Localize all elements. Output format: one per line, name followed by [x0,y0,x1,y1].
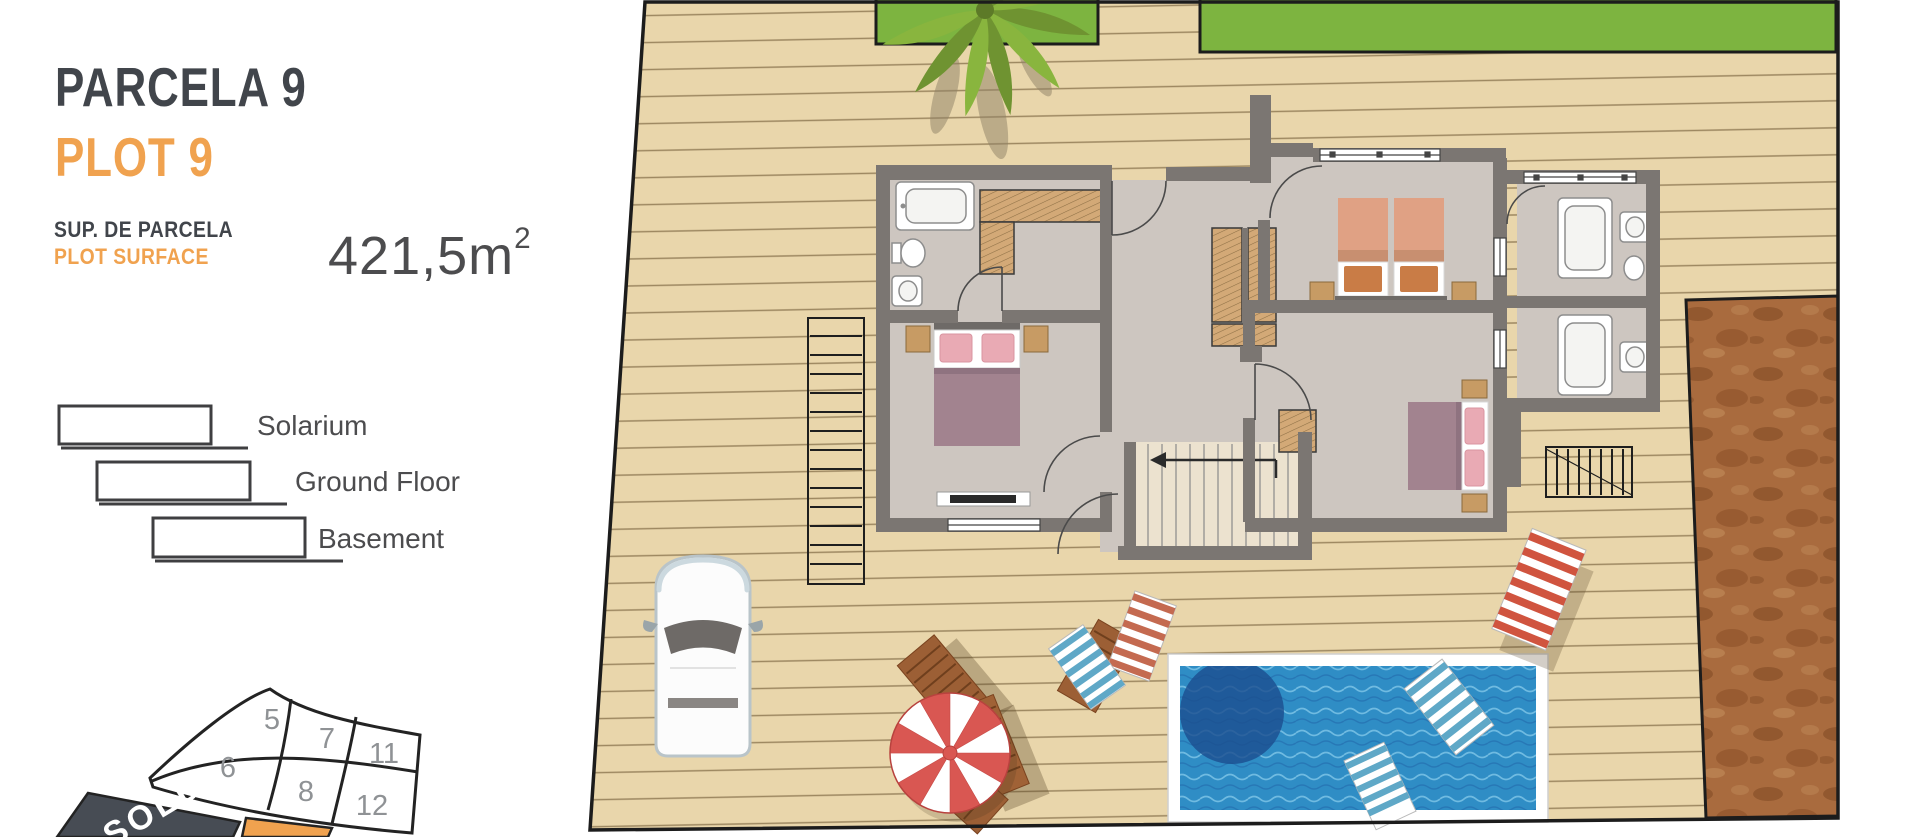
legend-label: Ground Floor [295,466,460,497]
toilet [892,239,925,267]
legend: Solarium Ground Floor Basement [59,406,460,561]
site-plan-graphic: Solarium Ground Floor Basement 5 [0,0,1920,837]
plot-number: 5 [264,704,280,736]
legend-row-ground-floor: Ground Floor [97,462,460,504]
window-twin-bedroom [1320,149,1440,161]
plot-number: 6 [220,752,236,784]
twin-bed-left [1335,198,1391,307]
legend-label: Solarium [257,410,367,441]
legend-label: Basement [318,523,444,554]
site-map: 5 7 11 6 8 12 SOLD [57,689,420,837]
plot-number: 7 [319,723,335,755]
window-bedroom1 [948,519,1040,531]
lawn-patch-large [1200,0,1836,52]
plot-sheet: PARCELA 9 PLOT 9 SUP. DE PARCELA PLOT SU… [0,0,1920,837]
window-wing [1524,172,1636,183]
legend-row-basement: Basement [153,518,444,561]
dirt-patch [1686,296,1838,818]
legend-row-solarium: Solarium [59,406,367,448]
plot-number: 12 [356,790,388,822]
window-twin-right [1494,238,1506,276]
swimming-pool [1168,654,1548,822]
toilet [1624,256,1644,280]
plot-number: 8 [298,776,314,808]
plot-number: 11 [369,738,399,770]
window-bedroom3 [1494,330,1506,368]
sink [892,276,922,306]
car [643,556,763,756]
plot-area [590,0,1838,834]
twin-bed-right [1391,198,1447,307]
media-console [937,492,1030,506]
